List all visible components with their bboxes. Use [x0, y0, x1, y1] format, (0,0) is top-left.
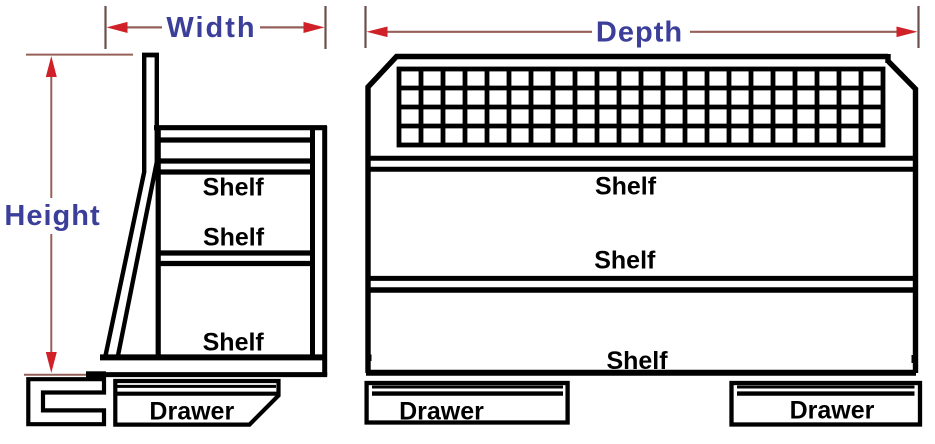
svg-text:Drawer: Drawer — [399, 398, 484, 426]
svg-text:Height: Height — [4, 200, 100, 232]
svg-text:Drawer: Drawer — [790, 397, 875, 425]
svg-text:Shelf: Shelf — [595, 173, 657, 201]
svg-text:Shelf: Shelf — [203, 174, 265, 202]
svg-text:Shelf: Shelf — [594, 247, 656, 275]
svg-text:Shelf: Shelf — [203, 329, 265, 357]
svg-text:Shelf: Shelf — [203, 224, 265, 252]
svg-text:Depth: Depth — [596, 17, 683, 49]
svg-text:Drawer: Drawer — [149, 398, 234, 426]
svg-text:Width: Width — [166, 12, 256, 44]
